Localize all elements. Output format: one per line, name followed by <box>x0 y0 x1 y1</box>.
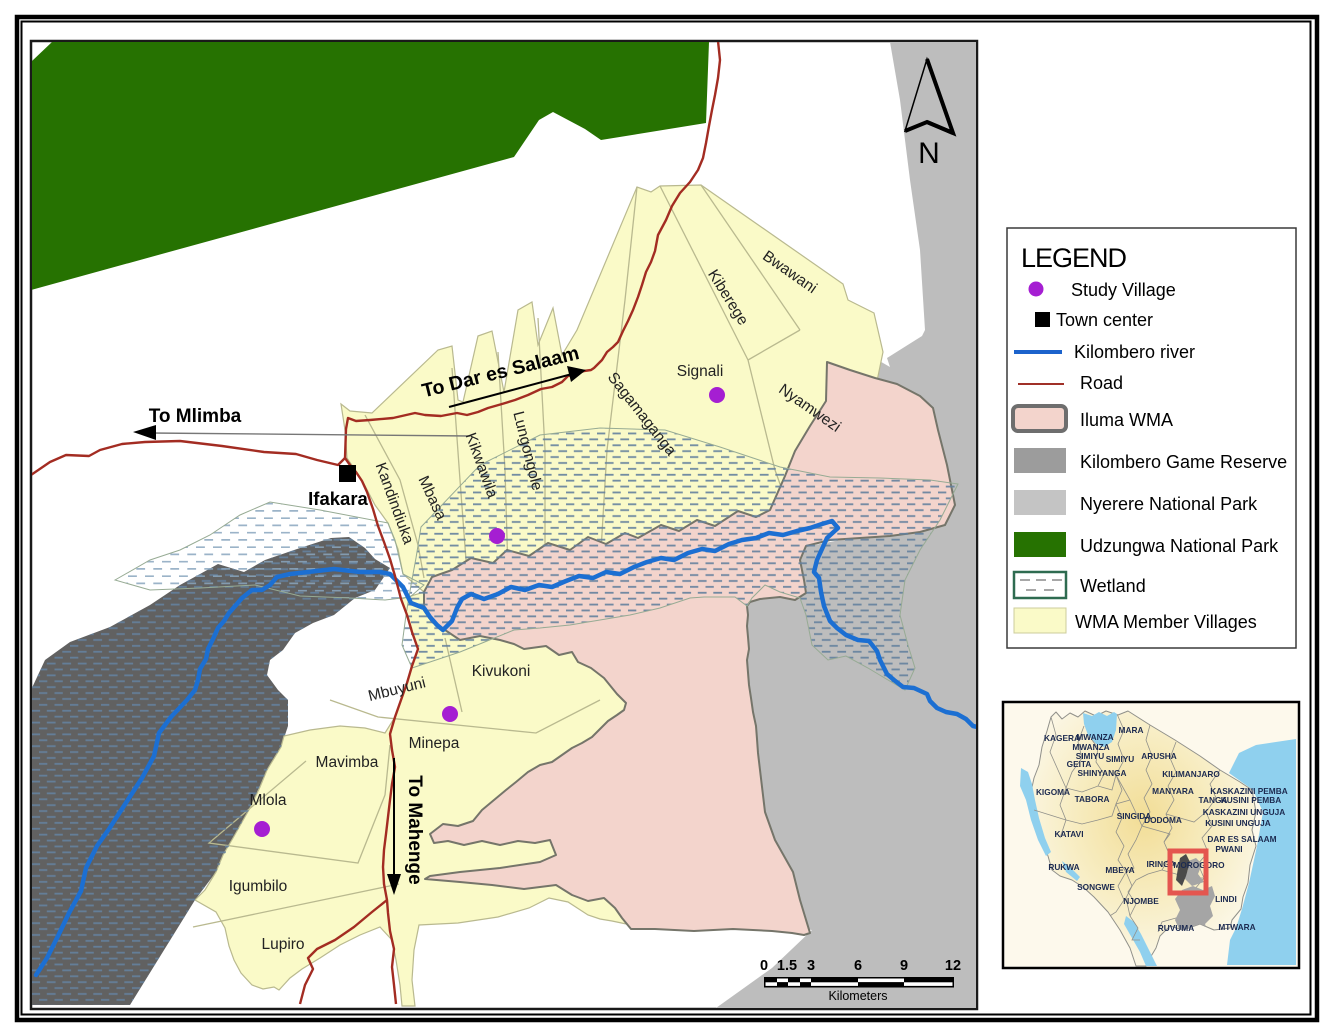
svg-text:KILIMANJARO: KILIMANJARO <box>1162 769 1220 779</box>
svg-text:Wetland: Wetland <box>1080 576 1146 596</box>
svg-text:MOROGORO: MOROGORO <box>1173 860 1225 870</box>
svg-text:Mavimba: Mavimba <box>316 754 379 771</box>
svg-text:MARA: MARA <box>1119 725 1144 735</box>
svg-text:MANYARA: MANYARA <box>1152 786 1194 796</box>
svg-text:Lupiro: Lupiro <box>261 936 304 953</box>
svg-text:WMA Member Villages: WMA Member Villages <box>1075 612 1257 632</box>
svg-text:RUKWA: RUKWA <box>1048 862 1079 872</box>
svg-text:Kilometers: Kilometers <box>828 989 887 1003</box>
svg-text:MWANZA: MWANZA <box>1076 732 1113 742</box>
svg-text:Ifakara: Ifakara <box>308 488 368 509</box>
svg-text:1.5: 1.5 <box>777 958 797 974</box>
svg-text:Town center: Town center <box>1056 310 1153 330</box>
svg-text:3: 3 <box>807 958 815 974</box>
svg-text:MTWARA: MTWARA <box>1218 922 1255 932</box>
svg-text:LINDI: LINDI <box>1215 894 1237 904</box>
svg-text:N: N <box>918 137 940 170</box>
svg-text:To Mlimba: To Mlimba <box>149 406 242 427</box>
svg-text:Kilombero Game Reserve: Kilombero Game Reserve <box>1080 452 1287 472</box>
svg-text:DODOMA: DODOMA <box>1144 815 1182 825</box>
svg-text:0: 0 <box>760 958 768 974</box>
svg-text:ARUSHA: ARUSHA <box>1141 751 1177 761</box>
svg-text:Minepa: Minepa <box>409 735 460 752</box>
svg-text:TABORA: TABORA <box>1075 794 1110 804</box>
svg-text:DAR ES SALAAM: DAR ES SALAAM <box>1207 834 1276 844</box>
svg-text:Mlola: Mlola <box>249 792 286 809</box>
svg-text:KATAVI: KATAVI <box>1054 829 1083 839</box>
svg-text:Signali: Signali <box>677 363 724 380</box>
svg-text:SHINYANGA: SHINYANGA <box>1077 768 1126 778</box>
svg-text:Nyerere National Park: Nyerere National Park <box>1080 494 1258 514</box>
svg-text:RUVUMA: RUVUMA <box>1158 923 1194 933</box>
svg-text:KUSINI PEMBA: KUSINI PEMBA <box>1221 795 1281 805</box>
svg-text:12: 12 <box>945 958 961 974</box>
svg-text:LEGEND: LEGEND <box>1021 243 1127 273</box>
svg-text:6: 6 <box>854 958 862 974</box>
svg-text:Kilombero river: Kilombero river <box>1074 342 1195 362</box>
svg-text:KASKAZINI UNGUJA: KASKAZINI UNGUJA <box>1203 807 1286 817</box>
svg-text:KUSINI UNGUJA: KUSINI UNGUJA <box>1205 818 1270 828</box>
svg-text:Igumbilo: Igumbilo <box>229 878 288 895</box>
svg-text:KIGOMA: KIGOMA <box>1036 787 1070 797</box>
svg-text:PWANI: PWANI <box>1215 844 1242 854</box>
svg-text:To Mahenge: To Mahenge <box>404 775 425 884</box>
svg-text:Kivukoni: Kivukoni <box>472 663 531 680</box>
svg-text:Road: Road <box>1080 373 1123 393</box>
svg-text:Iluma WMA: Iluma WMA <box>1080 410 1173 430</box>
svg-text:SIMIYU: SIMIYU <box>1106 754 1135 764</box>
svg-text:Study Village: Study Village <box>1071 280 1176 300</box>
svg-text:NJOMBE: NJOMBE <box>1123 896 1159 906</box>
svg-text:Udzungwa National Park: Udzungwa National Park <box>1080 536 1279 556</box>
svg-text:MBEYA: MBEYA <box>1105 865 1134 875</box>
svg-text:SONGWE: SONGWE <box>1077 882 1115 892</box>
svg-text:9: 9 <box>900 958 908 974</box>
